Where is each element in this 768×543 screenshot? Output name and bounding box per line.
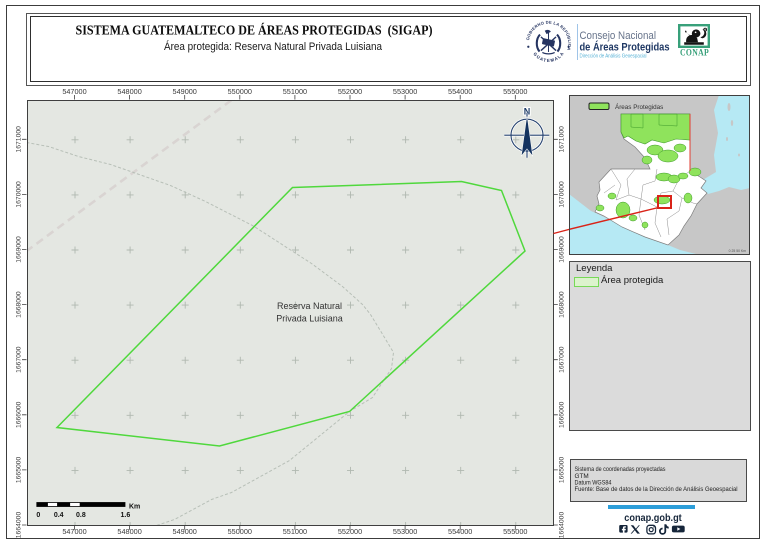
svg-text:551000: 551000 [283,87,307,96]
svg-text:1665000: 1665000 [16,456,23,483]
svg-text:554000: 554000 [448,87,472,96]
svg-text:1665000: 1665000 [559,456,566,483]
svg-text:0 25 50 Km: 0 25 50 Km [729,249,747,253]
svg-text:1667000: 1667000 [559,346,566,373]
svg-text:549000: 549000 [173,87,197,96]
svg-text:1669000: 1669000 [16,236,23,263]
svg-text:1670000: 1670000 [16,181,23,208]
svg-text:Fuente: Base de datos de la Di: Fuente: Base de datos de la Dirección de… [575,486,738,493]
svg-text:1669000: 1669000 [559,236,566,263]
svg-text:555000: 555000 [503,87,527,96]
svg-text:1671000: 1671000 [16,126,23,153]
svg-text:conap.gob.gt: conap.gob.gt [624,512,682,524]
svg-text:550000: 550000 [228,87,252,96]
svg-text:1667000: 1667000 [16,346,23,373]
svg-text:552000: 552000 [338,87,362,96]
svg-text:1668000: 1668000 [559,291,566,318]
svg-text:1671000: 1671000 [559,126,566,153]
svg-text:1670000: 1670000 [559,181,566,208]
svg-text:1666000: 1666000 [559,401,566,428]
svg-text:1664000: 1664000 [16,512,23,539]
svg-text:1666000: 1666000 [16,401,23,428]
svg-text:553000: 553000 [393,87,417,96]
svg-text:547000: 547000 [62,87,86,96]
svg-text:1668000: 1668000 [16,291,23,318]
svg-text:Áreas Protegidas: Áreas Protegidas [615,102,663,111]
svg-text:548000: 548000 [117,87,141,96]
svg-text:1664000: 1664000 [559,512,566,539]
